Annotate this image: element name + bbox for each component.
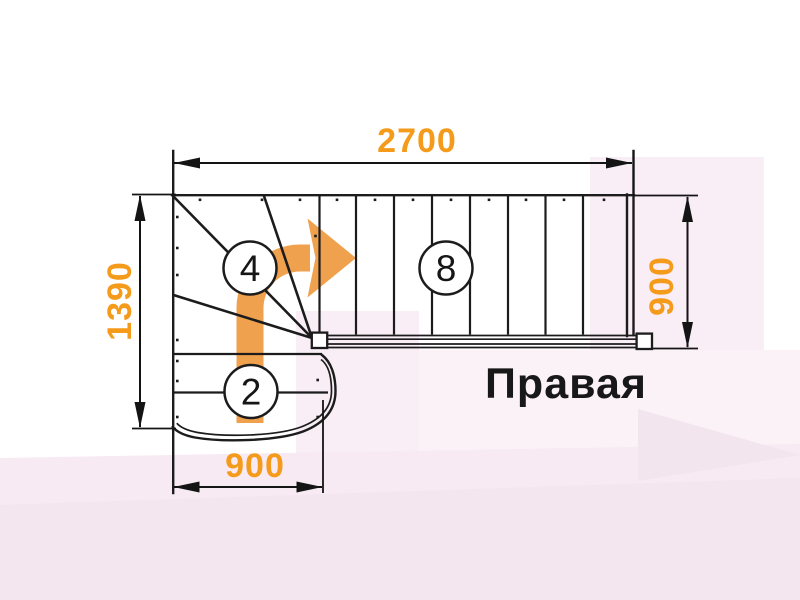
winder-count-value: 4 [240,248,261,289]
newel-post-square-left [312,333,327,348]
stair-plan-diagram: 2700 1390 900 900 4 8 2 Правая [0,0,800,600]
dimension-bottom-value: 900 [225,447,285,485]
dimension-left-value: 1390 [101,261,139,341]
lower-flight-count-value: 2 [241,372,262,413]
stair-plan-canvas: 2700 1390 900 900 4 8 2 Правая [0,0,800,600]
dimension-top-value: 2700 [377,122,457,160]
newel-post-square-right [637,334,652,349]
dimension-right-value: 900 [643,256,681,316]
orientation-label: Правая [485,360,647,408]
upper-flight-count-value: 8 [436,248,457,289]
